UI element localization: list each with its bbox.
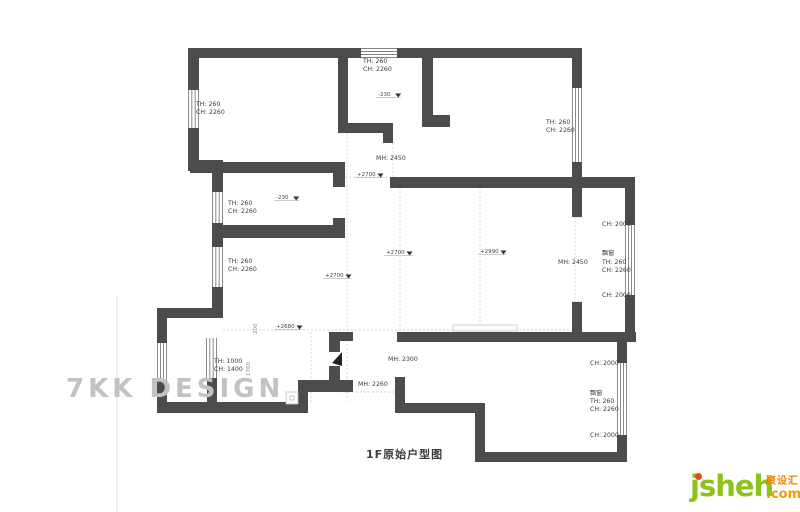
fixture-outline [453,325,517,331]
elevation-value: -230 [378,92,391,98]
wall-segment [333,218,345,238]
dimension-label: CH: 2000 [602,292,631,299]
dimension-label: TH: 1000 [213,358,242,365]
dimension-label: TH: 260 [589,398,614,405]
wall-segment [422,115,450,127]
window-symbol [361,48,397,58]
window-symbol [617,363,627,435]
window-symbol [157,343,167,380]
wall-segment [188,48,362,58]
dimension-label: CH: 2000 [602,221,631,228]
elevation-value: +2700 [325,273,344,279]
wall-segment [157,318,167,343]
window-symbol [625,225,635,295]
elevation-triangle-icon [501,251,507,255]
elevation-triangle-icon [297,326,303,330]
elevation-value: +2700 [386,250,405,256]
wall-segment [298,380,353,392]
logo-chinese-text: 聚设汇 [766,477,800,487]
dimension-label: TH: 260 [227,200,252,207]
floor-plan-page: TH: 260CH: 2260TH: 260CH: 2260TH: 260CH:… [0,0,800,512]
logo-wordmark: jsheh [690,472,773,501]
floor-plan-drawing: TH: 260CH: 2260TH: 260CH: 2260TH: 260CH:… [0,0,800,512]
elevation-triangle-icon [407,252,413,256]
wall-segment [390,177,635,188]
dimension-label: CH: 2000 [590,432,619,439]
wall-segment [329,366,340,392]
logo-tld-text: .com [766,488,800,501]
dimension-label: 飘窗 [590,389,602,397]
wall-segment [395,403,485,413]
wall-segment [157,402,308,413]
wall-segment [383,133,393,143]
dimension-label: CH: 2260 [363,66,392,73]
wall-segment [207,378,217,402]
window-symbol [212,192,223,223]
window-symbol [572,88,582,162]
dimension-label: MH: 2300 [388,356,418,363]
dimension-label: TH: 260 [601,259,626,266]
fixture-outline [286,392,298,404]
wall-segment [572,188,582,217]
dimension-label: TH: 260 [545,119,570,126]
wall-segment [212,171,223,192]
logo-dot-icon [695,473,702,480]
dimension-label: CH: 2260 [196,109,225,116]
elevation-value: +2990 [480,249,499,255]
elevation-triangle-icon [293,197,299,201]
elevation-triangle-icon [395,94,401,98]
window-symbol [212,247,223,287]
wall-segment [329,332,353,341]
wall-segment [572,58,582,88]
wall-segment [215,225,345,238]
wall-segment [190,162,345,173]
wall-segment [617,435,627,462]
wall-segment [396,48,582,58]
dimension-label: CH: 2260 [590,406,619,413]
wall-segment [338,123,393,133]
dimension-label: MH: 2450 [558,259,588,266]
wall-segment [617,332,636,342]
dimension-label: CH: 2260 [228,266,257,273]
plan-title: 1F原始户型图 [366,446,443,462]
windows [157,48,635,435]
wall-segment [625,188,635,225]
dimension-label: CH: 2260 [228,208,257,215]
wall-segment [475,452,627,462]
elevation-triangle-icon [346,275,352,279]
jsheh-logo: jsheh 聚设汇 .com [690,470,800,510]
wall-segment [333,173,345,187]
elevation-value: +2680 [276,324,295,330]
wall-segment [157,308,223,318]
dimension-label: CH: 2260 [602,267,631,274]
rotated-dimension-label: 200 [253,323,259,334]
dimension-label: CH: 2260 [546,127,575,134]
dimension-label: TH: 260 [195,101,220,108]
wall-segment [572,162,582,188]
dimension-label: TH: 260 [362,58,387,65]
elevation-value: -230 [276,195,289,201]
wall-segment [397,332,617,342]
dimension-label: MH: 2260 [358,381,388,388]
elevation-value: +2700 [357,172,376,178]
dimension-label: 飘窗 [602,249,614,257]
wall-segment [188,58,199,90]
door-leaf-icon [332,352,342,366]
dimension-labels: TH: 260CH: 2260TH: 260CH: 2260TH: 260CH:… [195,58,631,439]
dimension-label: MH: 2450 [376,155,406,162]
wall-segment [572,302,582,332]
dimension-label: CH: 2000 [590,360,619,367]
dimension-label: TH: 260 [227,258,252,265]
dimension-label: CH: 1400 [214,366,243,373]
rotated-dimension-label: 1760 [246,362,252,376]
wall-segment [338,55,348,123]
